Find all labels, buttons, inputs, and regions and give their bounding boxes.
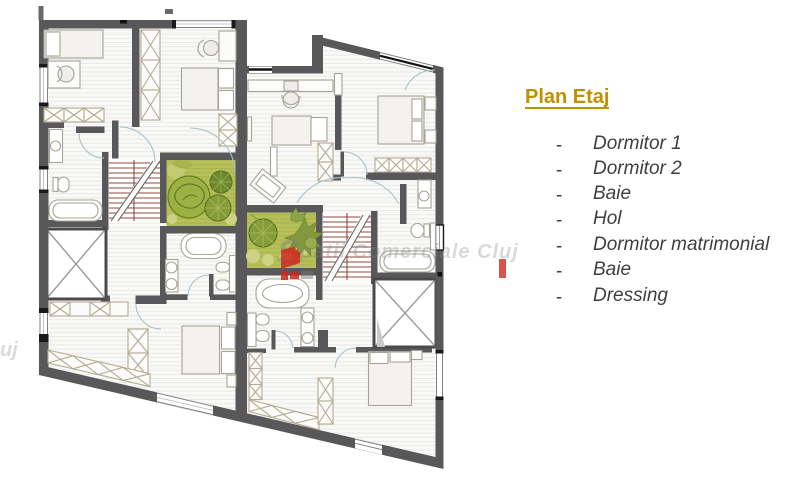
- svg-text:uj: uj: [0, 339, 18, 361]
- svg-text:patii Comerciale Cluj: patii Comerciale Cluj: [299, 241, 519, 263]
